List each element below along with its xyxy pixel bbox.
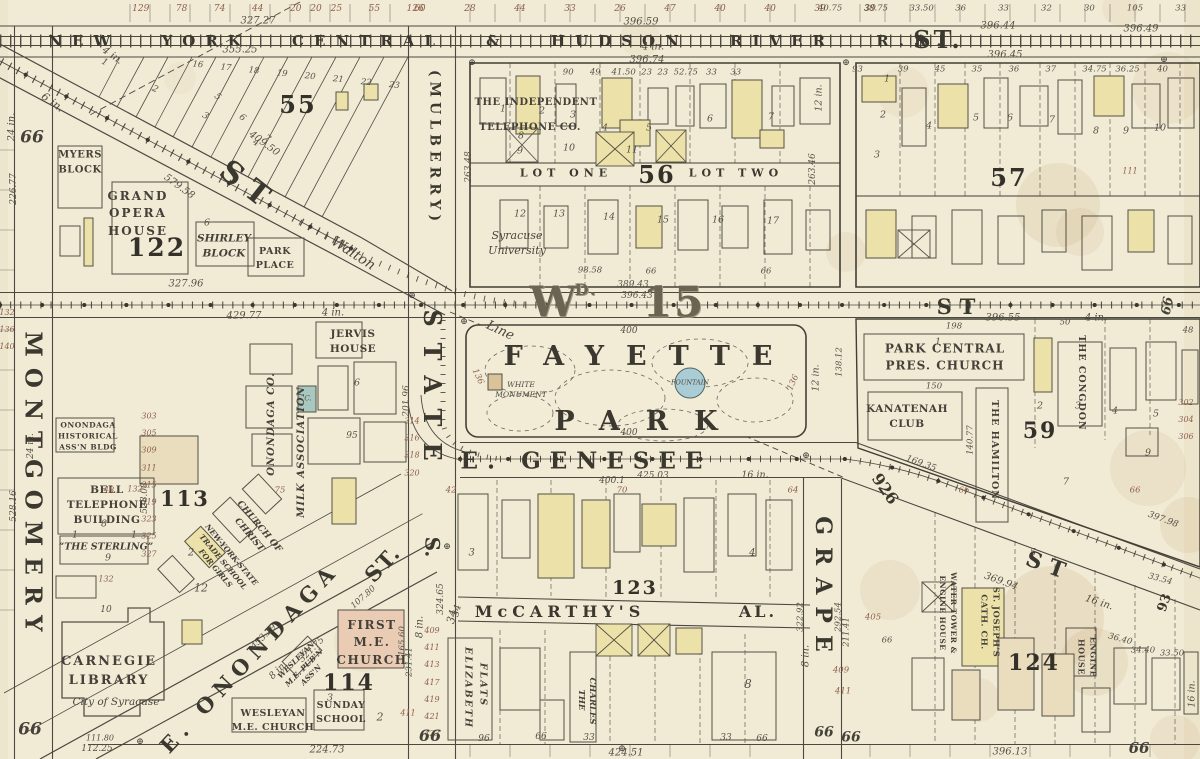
map-graphics (0, 0, 1200, 759)
monument (488, 374, 502, 390)
map-canvas: NEW YORK CENTRAL & HUDSON RIVER R.R.ST.3… (0, 0, 1200, 759)
fountain (675, 368, 705, 398)
park-outline (466, 325, 806, 437)
fayette-park (466, 325, 806, 441)
